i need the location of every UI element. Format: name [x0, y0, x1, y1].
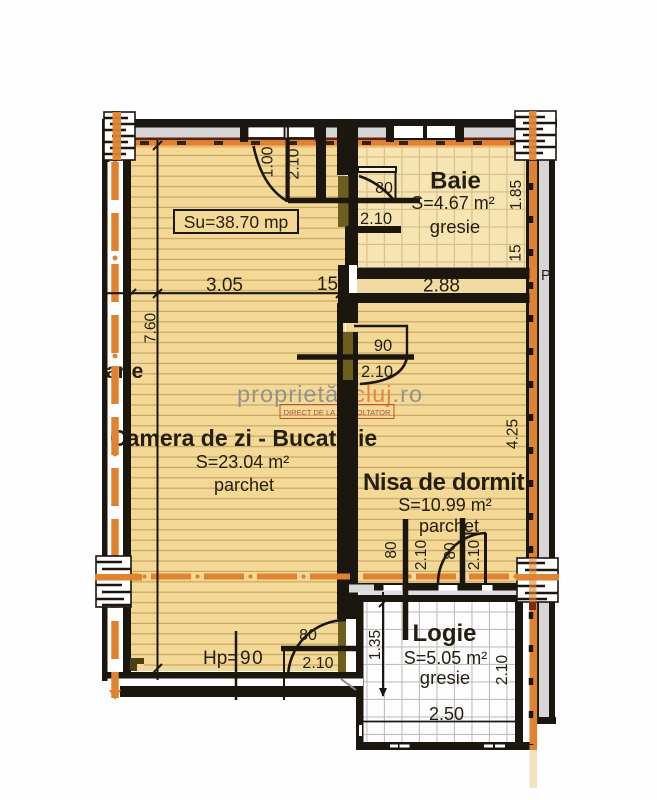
svg-text:2.10: 2.10 [302, 655, 333, 672]
svg-text:90: 90 [374, 337, 392, 355]
svg-text:1.85: 1.85 [508, 180, 525, 210]
svg-text:15: 15 [508, 244, 525, 261]
svg-text:S=4.67 m²: S=4.67 m² [411, 193, 495, 213]
svg-text:parchet: parchet [214, 475, 274, 495]
svg-text:2.10: 2.10 [494, 655, 511, 686]
svg-text:P: P [541, 268, 551, 284]
svg-text:gresie: gresie [420, 667, 470, 688]
svg-text:80: 80 [299, 627, 317, 644]
svg-text:proprietăţicluj.ro: proprietăţicluj.ro [237, 381, 423, 407]
svg-text:2.10: 2.10 [413, 540, 430, 571]
svg-text:S=5.05 m²: S=5.05 m² [404, 648, 488, 668]
svg-text:15: 15 [317, 274, 338, 295]
svg-text:Baie: Baie [430, 168, 481, 195]
svg-text:Logie: Logie [413, 620, 477, 647]
svg-text:2.10: 2.10 [361, 363, 393, 381]
svg-text:4.25: 4.25 [505, 419, 522, 449]
svg-text:2.10: 2.10 [286, 148, 303, 179]
svg-text:90: 90 [240, 648, 264, 669]
svg-text:80: 80 [375, 180, 393, 197]
svg-text:2.50: 2.50 [429, 704, 464, 724]
svg-text:2.88: 2.88 [423, 276, 460, 297]
svg-text:1.35: 1.35 [367, 630, 384, 660]
svg-text:7.60: 7.60 [143, 313, 160, 344]
svg-text:S=10.99 m²: S=10.99 m² [398, 495, 492, 515]
svg-text:gresie: gresie [430, 216, 480, 237]
svg-text:3.05: 3.05 [206, 275, 243, 296]
svg-text:2.10: 2.10 [466, 540, 483, 571]
svg-text:S=23.04 m²: S=23.04 m² [196, 452, 290, 472]
svg-text:1.00: 1.00 [260, 146, 277, 177]
svg-text:Hp=: Hp= [203, 648, 238, 669]
svg-text:80: 80 [383, 541, 400, 559]
svg-text:Nisa de dormit: Nisa de dormit [363, 469, 525, 496]
svg-text:Su=38.70 mp: Su=38.70 mp [184, 212, 289, 232]
svg-text:80: 80 [442, 542, 459, 560]
svg-text:2.10: 2.10 [360, 210, 392, 228]
